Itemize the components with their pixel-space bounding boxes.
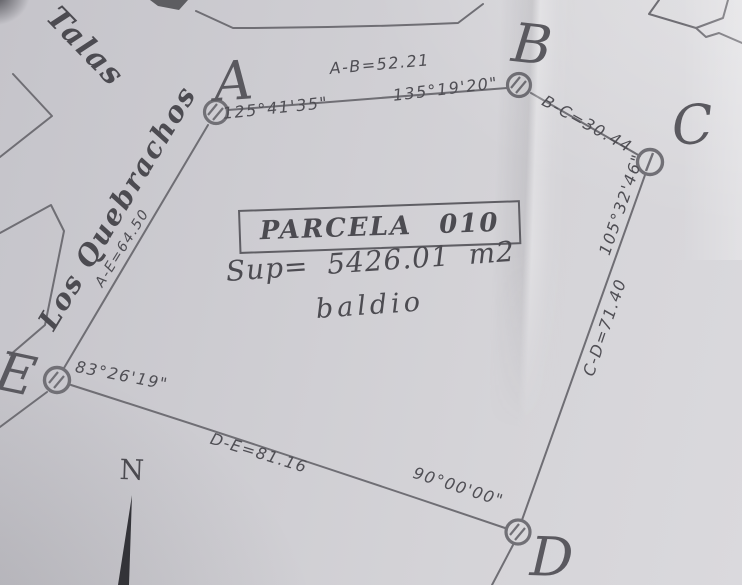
vertex-marker-e <box>45 368 70 393</box>
top-edge-mark <box>150 0 188 10</box>
vertex-label-d: D <box>529 530 574 585</box>
land-status-text: baldio <box>315 288 425 322</box>
street-talas-farside-line <box>196 4 483 28</box>
boundary-extension-d <box>492 545 513 585</box>
vertex-label-b: B <box>509 16 554 74</box>
vertex-marker-d <box>506 520 530 544</box>
survey-plan-photo: Talas Los Quebrachos A B C D E A-B=52.21… <box>0 0 742 585</box>
north-label: N <box>119 456 144 485</box>
north-needle <box>118 495 132 585</box>
adjacent-parcel-corner-upper-left <box>0 74 52 157</box>
vertex-label-c: C <box>670 97 715 154</box>
